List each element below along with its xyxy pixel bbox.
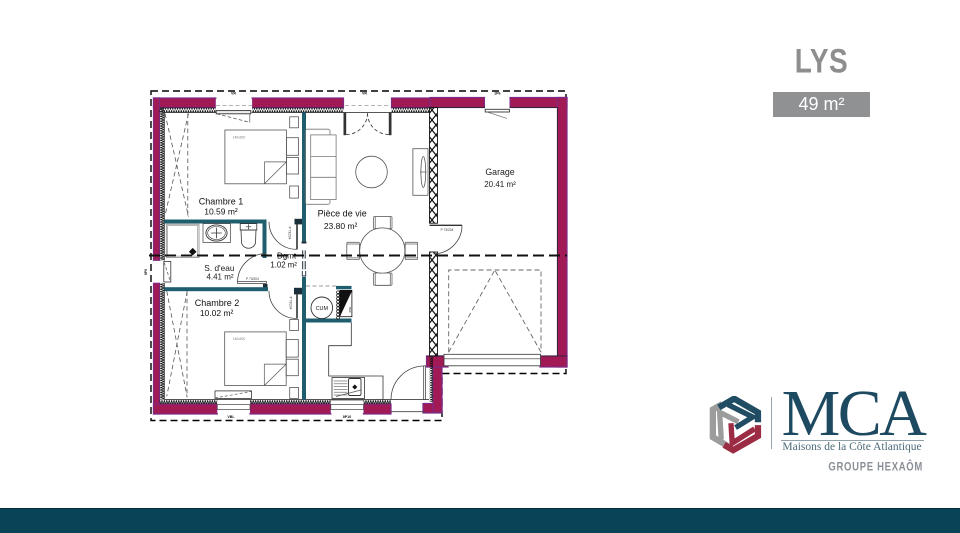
svg-text:10.59 m²: 10.59 m² bbox=[204, 207, 238, 217]
svg-text:REF: REF bbox=[348, 307, 352, 313]
svg-text:1P6: 1P6 bbox=[494, 92, 500, 96]
svg-text:10.02 m²: 10.02 m² bbox=[200, 308, 234, 318]
svg-text:8P6: 8P6 bbox=[144, 269, 148, 275]
svg-text:VBL: VBL bbox=[227, 415, 235, 419]
svg-text:Chambre 1: Chambre 1 bbox=[199, 197, 244, 207]
svg-text:VR: VR bbox=[362, 92, 367, 96]
svg-text:S. d'eau: S. d'eau bbox=[204, 263, 235, 273]
svg-text:P 73/204: P 73/204 bbox=[246, 277, 259, 281]
svg-text:23.80 m²: 23.80 m² bbox=[324, 221, 358, 231]
svg-text:Chambre 2: Chambre 2 bbox=[195, 298, 240, 308]
svg-text:P 73/204: P 73/204 bbox=[441, 228, 454, 232]
svg-text:140x200: 140x200 bbox=[233, 337, 245, 341]
svg-text:P 73/204: P 73/204 bbox=[288, 227, 292, 240]
svg-text:Pièce de vie: Pièce de vie bbox=[318, 209, 367, 219]
svg-text:4.41 m²: 4.41 m² bbox=[206, 273, 233, 282]
svg-text:8P10: 8P10 bbox=[343, 415, 351, 419]
svg-text:CUM: CUM bbox=[316, 306, 329, 312]
svg-text:Garage: Garage bbox=[485, 167, 514, 177]
svg-text:20.41 m²: 20.41 m² bbox=[484, 180, 516, 189]
svg-text:P 73/204: P 73/204 bbox=[289, 297, 293, 310]
svg-text:VR: VR bbox=[231, 92, 236, 96]
svg-text:140x200: 140x200 bbox=[233, 136, 245, 140]
svg-text:Dgmt: Dgmt bbox=[277, 252, 297, 261]
svg-text:1.02 m²: 1.02 m² bbox=[270, 261, 297, 270]
